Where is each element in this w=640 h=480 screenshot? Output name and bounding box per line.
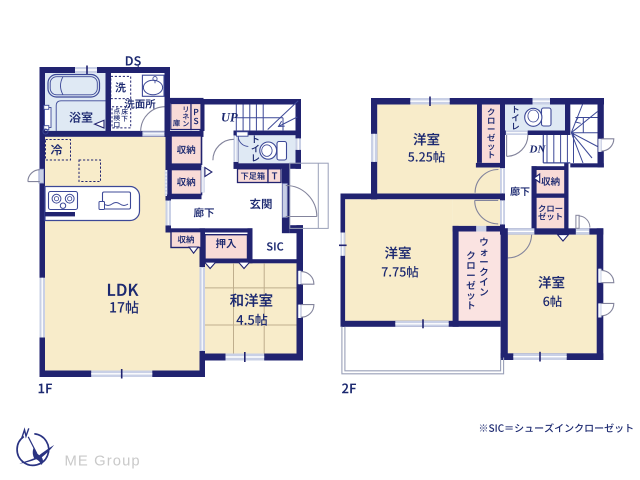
svg-text:DN: DN	[529, 144, 547, 156]
svg-text:ME Group: ME Group	[65, 454, 141, 470]
svg-text:UP: UP	[221, 111, 238, 125]
